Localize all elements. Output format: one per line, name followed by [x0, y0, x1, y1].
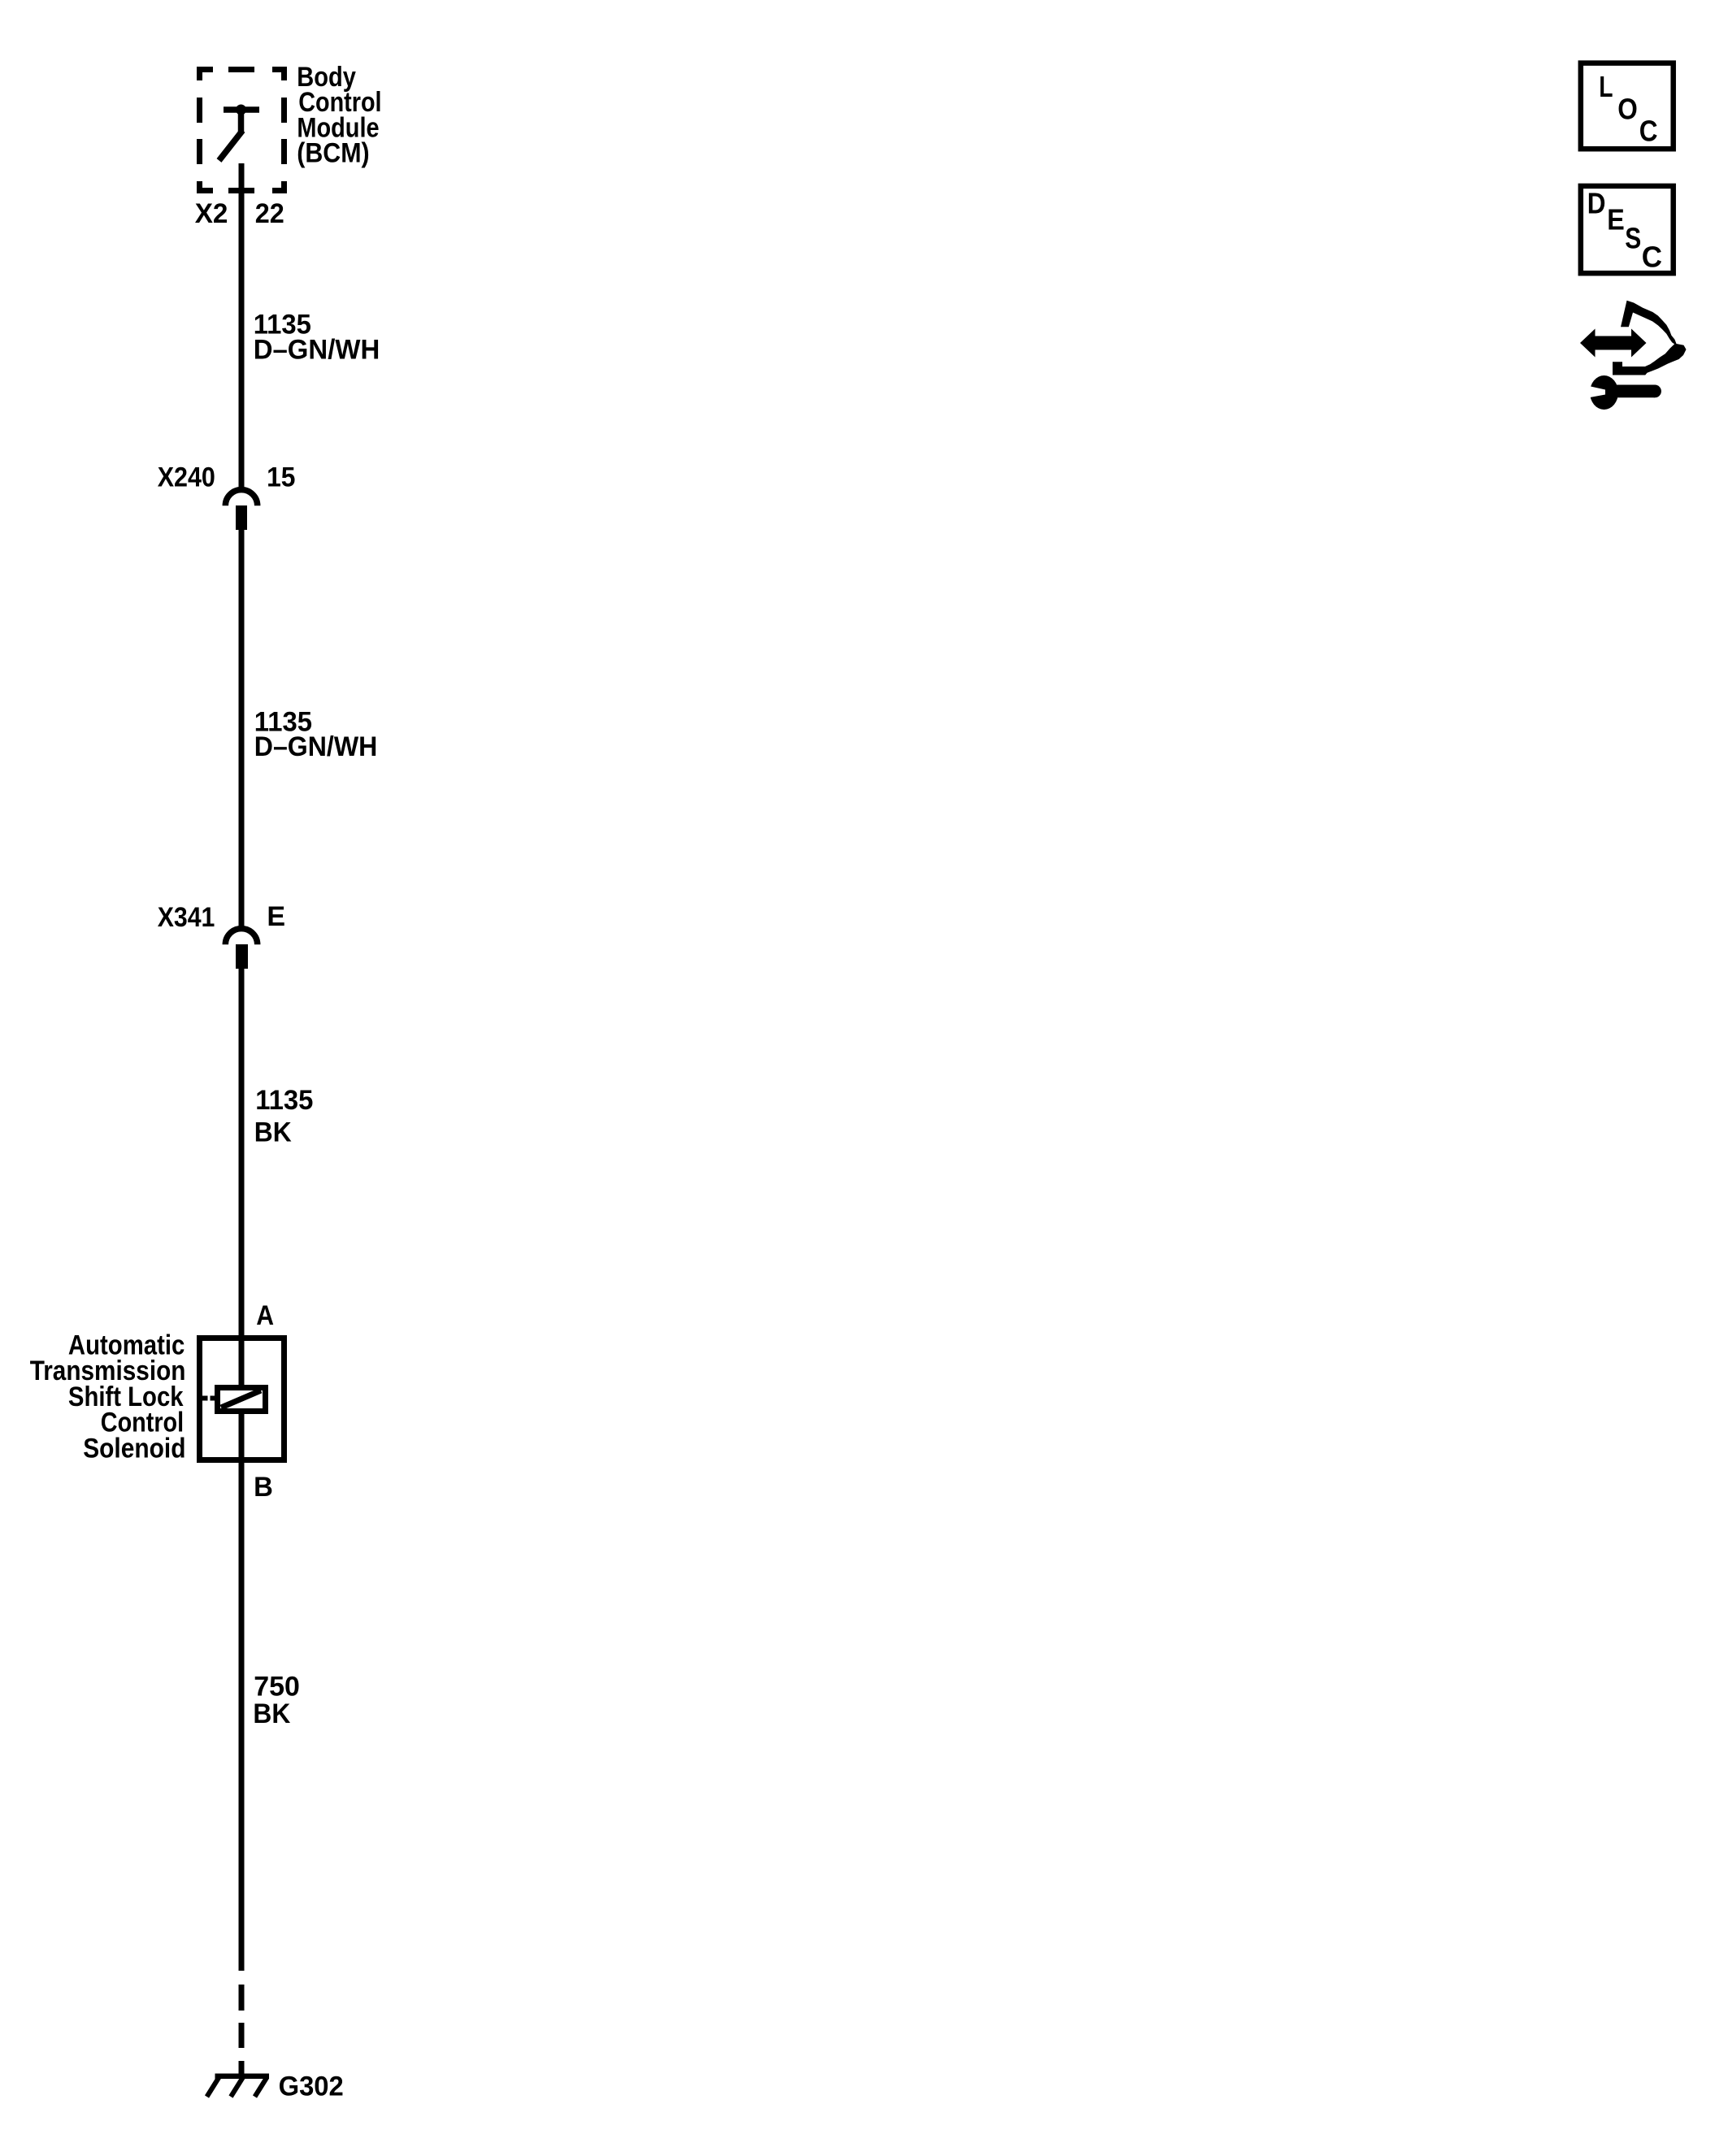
svg-text:G302: G302: [279, 2071, 344, 2102]
svg-text:E: E: [1607, 204, 1625, 236]
svg-text:C: C: [1639, 115, 1658, 148]
svg-text:1135: 1135: [255, 1085, 313, 1116]
svg-text:15: 15: [267, 462, 295, 492]
svg-text:X341: X341: [158, 901, 215, 932]
svg-text:D–GN/WH: D–GN/WH: [254, 731, 378, 762]
svg-text:BK: BK: [253, 1698, 290, 1729]
svg-text:BK: BK: [254, 1116, 292, 1147]
svg-text:A: A: [256, 1299, 274, 1330]
svg-text:X2: X2: [195, 199, 228, 229]
svg-text:D–GN/WH: D–GN/WH: [254, 335, 380, 366]
svg-text:D: D: [1587, 188, 1606, 220]
svg-text:E: E: [267, 901, 285, 932]
svg-text:S: S: [1625, 223, 1641, 255]
svg-text:22: 22: [255, 198, 284, 229]
svg-text:C: C: [1642, 241, 1662, 274]
svg-text:B: B: [254, 1473, 273, 1503]
svg-text:X240: X240: [158, 462, 215, 492]
svg-text:Solenoid: Solenoid: [83, 1433, 185, 1464]
svg-text:O: O: [1617, 93, 1638, 125]
svg-text:(BCM): (BCM): [297, 137, 369, 168]
svg-text:L: L: [1599, 71, 1613, 103]
